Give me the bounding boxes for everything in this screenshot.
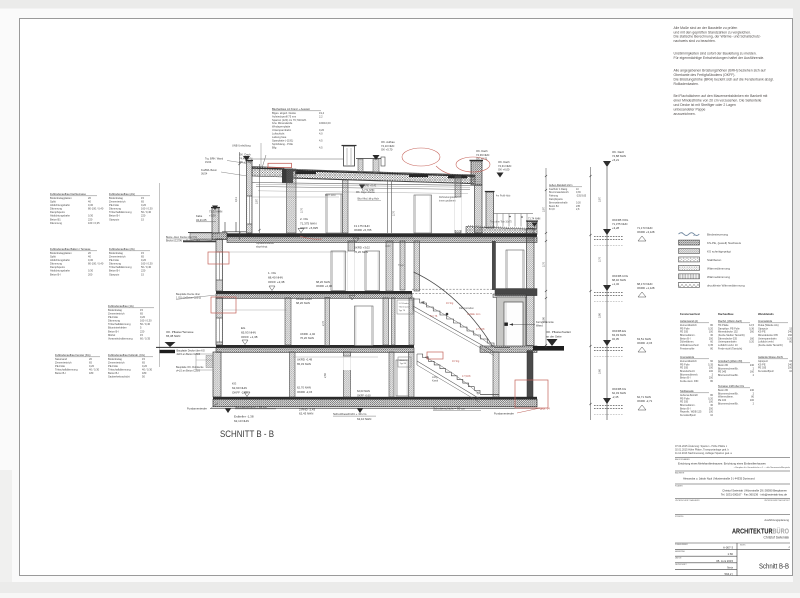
svg-text:+3,28: +3,28: [612, 226, 620, 230]
svg-text:UNTERSCHRIFT BAUHERR: UNTERSCHRIFT BAUHERR: [675, 499, 700, 502]
svg-text:Zementestrich: Zementestrich: [109, 200, 126, 204]
svg-text:Tel. 0231 000167 · Fax 360136: Tel. 0231 000167 · Fax 360136 · info@swi…: [721, 492, 788, 496]
svg-text:65,93 NHN: 65,93 NHN: [241, 331, 256, 335]
svg-text:UKRD +3,02: UKRD +3,02: [354, 246, 370, 250]
svg-text:160 / 0,30: 160 / 0,30: [141, 262, 153, 266]
svg-text:0,20: 0,20: [141, 203, 147, 207]
svg-text:Spanplatte (-1191): Spanplatte (-1191): [272, 138, 293, 142]
svg-text:Gründach (Warm 80): Gründach (Warm 80): [718, 359, 742, 363]
svg-text:bzw. Mineralwolle: bzw. Mineralwolle: [272, 121, 293, 125]
svg-text:16 Stg: 16 Stg: [446, 302, 454, 305]
svg-text:Gelände-Wiese AG/N: Gelände-Wiese AG/N: [758, 355, 783, 359]
svg-text:2,2: 2,2: [319, 114, 323, 118]
svg-text:GEZEICHNET: GEZEICHNET: [675, 564, 687, 566]
svg-text:PE-Folie: PE-Folie: [55, 364, 66, 368]
svg-text:74,31 NHN: 74,31 NHN: [498, 164, 511, 168]
svg-text:62,03 NHN: 62,03 NHN: [357, 389, 370, 393]
svg-text:220: 220: [141, 269, 146, 273]
svg-text:62,10 NHN: 62,10 NHN: [357, 417, 371, 421]
svg-text:0,30: 0,30: [88, 258, 94, 262]
svg-text:Dachaufbau: Dachaufbau: [718, 312, 734, 316]
svg-text:0,30: 0,30: [88, 269, 94, 273]
svg-text:80-100 / 0,40: 80-100 / 0,40: [88, 207, 104, 211]
svg-text:gepr. 04: gepr. 04: [540, 407, 550, 411]
svg-text:PE-Folie: PE-Folie: [109, 203, 120, 207]
svg-text:Fußbodenaufbau Fenster (KG): Fußbodenaufbau Fenster (KG): [55, 353, 91, 357]
svg-text:Kunststoffputz: Kunststoffputz: [758, 370, 775, 373]
svg-text:0,20: 0,20: [141, 258, 147, 262]
svg-text:Gipsputz: Gipsputz: [109, 217, 120, 221]
svg-text:2,80: 2,80: [598, 312, 602, 318]
svg-text:71,375 NHN: 71,375 NHN: [300, 222, 317, 226]
svg-text:0,30: 0,30: [88, 214, 94, 218]
svg-text:Errichtung eines Mehrfamilienh: Errichtung eines Mehrfamilienhauses: Err…: [678, 462, 766, 466]
svg-text:Typ 70: Typ 70: [399, 310, 406, 312]
svg-text:15/24: 15/24: [205, 161, 212, 164]
svg-text:0,20: 0,20: [89, 364, 95, 368]
svg-text:2,80: 2,80: [542, 316, 546, 322]
svg-text:Bodenbelagplatten: Bodenbelagplatten: [50, 251, 72, 255]
svg-text:an der Seite: an der Seite: [546, 334, 562, 338]
svg-text:160 / 0,30: 160 / 0,30: [140, 319, 152, 323]
svg-text:0,20: 0,20: [749, 341, 754, 344]
svg-text:Splitt: Splitt: [50, 255, 56, 259]
svg-text:05. Juni 2015: 05. Juni 2015: [716, 559, 733, 563]
svg-text:Bodenbelagplatten: Bodenbelagplatten: [50, 196, 72, 200]
svg-text:Wärmedämmung: Wärmedämmung: [707, 275, 730, 279]
svg-text:OK +5,70: OK +5,70: [381, 148, 393, 152]
svg-text:-2,45: -2,45: [612, 395, 619, 399]
svg-text:Zementestrich: Zementestrich: [55, 361, 72, 365]
svg-text:Oberkante des Fertigfußbodens: Oberkante des Fertigfußbodens (OKFF).: [674, 73, 736, 77]
svg-text:+5,21: +5,21: [612, 158, 620, 162]
svg-text:BAUHERR: BAUHERR: [675, 472, 685, 475]
svg-text:Bodenbelag: Bodenbelag: [109, 196, 123, 200]
svg-text:19,4: 19,4: [319, 111, 325, 115]
svg-text:OK. Aufbau: OK. Aufbau: [381, 140, 395, 144]
svg-text:Terrasse 1/28 über KG: Terrasse 1/28 über KG: [718, 384, 744, 388]
svg-text:Trittschalldämmung: Trittschalldämmung: [108, 322, 131, 326]
svg-text:OKRD -2,15: OKRD -2,15: [297, 390, 313, 394]
svg-text:OKRD -0,15: OKRD -0,15: [637, 341, 653, 345]
svg-text:Schutzbeschicht + 30 cm: Schutzbeschicht + 30 cm: [333, 412, 367, 416]
svg-text:76,20 NHN: 76,20 NHN: [354, 250, 368, 254]
svg-text:4,0: 4,0: [319, 132, 323, 136]
svg-text:4x15 an Beton C25/3: 4x15 an Beton C25/3: [177, 353, 201, 356]
svg-text:UKRD -0,49: UKRD -0,49: [297, 358, 313, 362]
svg-text:Christof Swieniak | Würzs: Christof Swieniak | Würzstraße 29 | 5959…: [722, 489, 787, 493]
svg-text:50 / 0,40: 50 / 0,40: [140, 322, 151, 326]
svg-text:65,38 NHN: 65,38 NHN: [166, 334, 180, 338]
svg-text:02.01.2015 Höhe Plätze, Tra: 02.01.2015 Höhe Plätze, Transportanlage …: [675, 449, 730, 452]
svg-text:OKFF +2,38: OKFF +2,38: [268, 280, 285, 284]
svg-text:Abdeck: Abdeck: [400, 359, 408, 362]
svg-text:Christof Swieniak: Christof Swieniak: [764, 536, 790, 540]
svg-text:Aufsteckprofil 75 mm: Aufsteckprofil 75 mm: [272, 114, 296, 118]
svg-text:74,10 NHN: 74,10 NHN: [381, 144, 394, 148]
svg-text:160 / 0,30: 160 / 0,30: [141, 207, 153, 211]
svg-text:Trittschalldämmung: Trittschalldämmung: [109, 210, 132, 214]
svg-text:Alexandra u. Jakob Nyul |: Alexandra u. Jakob Nyul | Musterstraße 5…: [683, 477, 755, 481]
svg-text:68,20 NHN: 68,20 NHN: [296, 301, 310, 305]
svg-text:76,20 NHN: 76,20 NHN: [300, 336, 314, 340]
svg-text:PLANNUMMER: PLANNUMMER: [675, 543, 688, 546]
svg-text:Dämmung: Dämmung: [109, 262, 122, 266]
svg-text:160/10,00: 160/10,00: [319, 121, 331, 125]
svg-text:11.12.2013 Nachmessung, Aufl: 11.12.2013 Nachmessung, Auflager Sparren…: [675, 452, 732, 455]
svg-text:2,70: 2,70: [300, 207, 304, 213]
svg-text:220: 220: [88, 217, 93, 221]
svg-text:B 3,8: B 3,8: [549, 208, 555, 211]
svg-text:Dampfsperre: Dampfsperre: [50, 265, 66, 269]
svg-text:Außenwand (A): Außenwand (A): [680, 319, 698, 323]
svg-text:68,40 NHN: 68,40 NHN: [268, 276, 283, 280]
svg-text:40 / 0,30: 40 / 0,30: [142, 368, 153, 372]
svg-text:50 / 0,40: 50 / 0,40: [141, 265, 152, 269]
svg-text:OK. Dach: OK. Dach: [476, 149, 488, 153]
svg-text:OKFF -0,60: OKFF -0,60: [357, 393, 371, 397]
svg-text:Dämmung: Dämmung: [109, 207, 122, 211]
svg-text:Blechanfass mit Kranz + Auswei: Blechanfass mit Kranz + Ausweit: [272, 107, 310, 111]
svg-text:62,10 NHN: 62,10 NHN: [234, 419, 249, 423]
svg-text:Bodenbelag: Bodenbelag: [108, 357, 122, 361]
svg-text:Trittschalldämmung: Trittschalldämmung: [55, 368, 78, 372]
svg-text:abgehängt: abgehängt: [256, 245, 268, 248]
svg-text:Dämmung: Dämmung: [50, 221, 63, 225]
svg-text:60 / 0,35: 60 / 0,35: [140, 336, 151, 340]
svg-text:Fußbodenaufbau Dachterrasse: Fußbodenaufbau Dachterrasse: [50, 192, 86, 196]
svg-text:Dämmung: Dämmung: [108, 319, 121, 323]
svg-text:OK. Dach: OK. Dach: [239, 153, 251, 157]
svg-text:Trittschalldämmung: Trittschalldämmung: [109, 265, 132, 269]
svg-text:Erdkeller -1,38: Erdkeller -1,38: [234, 415, 254, 419]
svg-text:Mörtel: Mörtel: [108, 333, 116, 337]
svg-text:Netz: Netz: [727, 565, 733, 569]
svg-text:Dämmung: Dämmung: [50, 262, 63, 266]
svg-text:65,33 NHN: 65,33 NHN: [297, 362, 311, 366]
svg-text:Gefälle 1cm: Gefälle 1cm: [467, 313, 480, 316]
svg-text:Trau dem Tide 10x75: Trau dem Tide 10x75: [490, 221, 512, 224]
svg-text:Thermostat: Thermostat: [399, 305, 410, 308]
svg-text:und mit den geprüften Standzah: und mit den geprüften Standzahlen zu ver…: [674, 30, 752, 34]
svg-text:+3,05: +3,05: [209, 213, 216, 217]
svg-text:260: 260: [750, 331, 755, 334]
svg-text:±0,35: ±0,35: [612, 337, 619, 341]
svg-text:2.RND -2,43: 2.RND -2,43: [299, 407, 315, 411]
svg-text:2. OG: 2. OG: [300, 217, 309, 221]
svg-text:Fußbodenaufbau (1G): Fußbodenaufbau (1G): [108, 304, 134, 308]
svg-text:Ferde-stein. DIN: Ferde-stein. DIN: [680, 380, 699, 383]
svg-text:180: 180: [89, 371, 94, 375]
svg-text:Beton B1: Beton B1: [50, 217, 61, 221]
svg-text:0,20: 0,20: [142, 364, 148, 368]
svg-text:1. OG: 1. OG: [268, 271, 277, 275]
svg-text:Dämmung: Dämmung: [50, 207, 63, 211]
svg-text:Ausführungsplanung: Ausführungsplanung: [764, 518, 789, 522]
svg-text:5,772 NHN: 5,772 NHN: [362, 189, 375, 192]
svg-text:PE-Folie: PE-Folie: [109, 258, 120, 262]
svg-text:Sparren (120) cm 76,740/126.: Sparren (120) cm 76,740/126.: [272, 118, 307, 122]
svg-text:KS schnittgeprägt: KS schnittgeprägt: [707, 250, 731, 254]
svg-text:Kunststoffputz: Kunststoffputz: [680, 414, 697, 417]
svg-text:594,2 |: 594,2 |: [724, 572, 733, 576]
svg-text:anzuzeichnen.: anzuzeichnen.: [674, 112, 696, 116]
svg-text:DATUM: DATUM: [675, 556, 682, 559]
svg-text:Zementestrich: Zementestrich: [108, 312, 125, 316]
svg-text:ARCHITEKTURBÜRO: ARCHITEKTURBÜRO: [732, 526, 789, 535]
svg-text:Bindesteuerung: Bindesteuerung: [707, 233, 728, 237]
svg-text:16 Stg: 16 Stg: [452, 360, 460, 363]
svg-text:Abdichtungsbahn: Abdichtungsbahn: [50, 203, 71, 207]
svg-text:Bodenbelag: Bodenbelag: [109, 251, 123, 255]
svg-text:OK +3,21: OK +3,21: [239, 160, 251, 164]
svg-text:BAUVORHABEN: BAUVORHABEN: [675, 458, 690, 461]
svg-text:Fundamenterder: Fundamenterder: [494, 412, 514, 416]
svg-text:Die Brüstungshöhe (BRH) bezieh: Die Brüstungshöhe (BRH) bezieht sich auf…: [674, 77, 774, 81]
svg-text:Innenwände: Innenwände: [758, 319, 773, 323]
svg-text:OKRD +2,08: OKRD +2,08: [316, 284, 332, 288]
svg-text:Schnitt B-B: Schnitt B-B: [759, 562, 789, 571]
svg-text:17,5/28: 17,5/28: [462, 375, 471, 378]
svg-text:36/24: 36/24: [201, 172, 208, 175]
svg-text:OK +6,00: OK +6,00: [498, 168, 510, 172]
svg-text:+ Bauplan für Grundstücke v.1: + Bauplan für Grundstücke v.1 — alle Nen…: [734, 466, 791, 469]
svg-text:2,70: 2,70: [598, 256, 602, 262]
svg-text:innen gedämmt: innen gedämmt: [439, 199, 456, 202]
svg-text:+1,32: +1,32: [612, 282, 620, 286]
svg-text:Beton B-I: Beton B-I: [108, 371, 119, 375]
svg-text:Dampfsperre: Dampfsperre: [50, 210, 66, 214]
svg-text:OKRD +5,705: OKRD +5,705: [354, 228, 372, 232]
svg-text:Dämmstreifen: Dämmstreifen: [459, 307, 475, 310]
svg-text:0,30: 0,30: [88, 203, 94, 207]
svg-text:Alle angegebenen Brüstungshöhe: Alle angegebenen Brüstungshöhen (BRH) be…: [674, 69, 766, 73]
svg-text:druckfeste Wärmedämmung: druckfeste Wärmedämmung: [707, 283, 745, 287]
svg-text:Fußbodenaufbau Kellerab. (KG): Fußbodenaufbau Kellerab. (KG): [108, 353, 145, 357]
svg-text:unbesandeter Pappe: unbesandeter Pappe: [674, 107, 706, 111]
svg-text:Fußbodenaufbau (2G): Fußbodenaufbau (2G): [109, 247, 135, 251]
svg-text:A-007-3: A-007-3: [723, 546, 733, 550]
svg-text:Fundamenterder: Fundamenterder: [187, 406, 207, 410]
svg-text:2,70: 2,70: [542, 261, 546, 267]
svg-text:Unstimmigkeiten sind sofort de: Unstimmigkeiten sind sofort der Bauleitu…: [674, 52, 757, 56]
svg-text:INDEX: INDEX: [740, 544, 746, 546]
svg-text:und Decke ist mit Streifiger o: und Decke ist mit Streifiger oder 2 Lage…: [674, 103, 736, 107]
svg-text:Gipsputz: Gipsputz: [109, 272, 120, 276]
svg-text:OKRD +1,128: OKRD +1,128: [637, 286, 655, 290]
svg-text:Fenstersohle: Fenstersohle: [680, 347, 695, 350]
svg-text:Abdichtungsbahn: Abdichtungsbahn: [50, 258, 71, 262]
svg-text:74,39 NHN: 74,39 NHN: [476, 153, 489, 157]
svg-text:Bitumenschweißb.: Bitumenschweißb.: [718, 374, 739, 377]
svg-text:4m Profil-Holz: 4m Profil-Holz: [496, 195, 511, 198]
svg-text:Beton B-I: Beton B-I: [50, 272, 61, 276]
svg-text:07.04.2015 Änderung: Sparren: 07.04.2015 Änderung: Sparren - Höhe Plät…: [675, 445, 728, 448]
svg-text:Bodenbelag: Bodenbelag: [108, 308, 122, 312]
svg-text:220: 220: [141, 214, 146, 218]
svg-text:1:66: 1:66: [728, 552, 734, 556]
svg-text:62,43 NHN: 62,43 NHN: [299, 412, 313, 416]
svg-text:62,90 NHN: 62,90 NHN: [232, 386, 247, 390]
svg-text:d=LS an Beton C25/3: d=LS an Beton C25/3: [176, 369, 201, 372]
svg-text:17,5/28: 17,5/28: [476, 328, 485, 331]
svg-text:OK. Pflaster/Gelänt: OK. Pflaster/Gelänt: [546, 330, 571, 334]
svg-text:Rollladenkasten.: Rollladenkasten.: [674, 82, 699, 86]
svg-text:Fensterwerttext: Fensterwerttext: [680, 312, 700, 316]
svg-text:Abdichtungsbahn: Abdichtungsbahn: [50, 269, 71, 273]
svg-text:EG: EG: [241, 326, 246, 330]
svg-text:Flachd. (Warm dach): Flachd. (Warm dach): [718, 319, 742, 323]
svg-text:Spritzklang - Prille: Spritzklang - Prille: [272, 142, 293, 146]
svg-text:Alle Maße sind an der Baustell: Alle Maße sind an der Baustelle zu prüfe…: [674, 26, 738, 30]
svg-text:Bei Flachdächern auf den Mauer: Bei Flachdächern auf den Mauerwerksbänke…: [674, 94, 768, 98]
svg-text:Die statische Berechnung, der: Die statische Berechnung, der Wärme- und…: [674, 35, 761, 39]
svg-text:OKFF +1,38: OKFF +1,38: [241, 335, 258, 339]
svg-text:(Ferde-stelle Tansicht): (Ferde-stelle Tansicht): [758, 344, 783, 347]
svg-text:Voranstrichdämmung: Voranstrichdämmung: [108, 336, 133, 340]
svg-text:34,21.05: 34,21.05: [196, 218, 207, 222]
svg-text:Fußbodenaufbau Balkon / Terra: Fußbodenaufbau Balkon / Terrasse: [50, 247, 91, 251]
svg-text:Splitt: Splitt: [50, 200, 56, 204]
svg-text:Innenwände: Innenwände: [680, 355, 695, 359]
svg-text:Typ 80: Typ 80: [400, 363, 407, 365]
svg-text:Beton B-I: Beton B-I: [55, 371, 66, 375]
svg-text:200: 200: [88, 272, 93, 276]
svg-text:Natursand: Natursand: [55, 357, 68, 361]
svg-text:1030: 1030: [385, 245, 391, 248]
svg-text:80-100 / 0,40: 80-100 / 0,40: [88, 262, 104, 266]
svg-text:2,70: 2,70: [392, 210, 396, 216]
svg-text:OKFF -2,08: OKFF -2,08: [232, 390, 248, 394]
svg-text:OKRD +3,128: OKRD +3,128: [637, 230, 655, 234]
svg-text:71,32 NHN: 71,32 NHN: [209, 210, 222, 214]
svg-text:Wärmedämmung: Wärmedämmung: [707, 267, 730, 271]
svg-text:UNB Umhüllung: UNB Umhüllung: [232, 144, 251, 148]
svg-text:Wand: Wand: [536, 324, 543, 328]
svg-text:Beton B-I: Beton B-I: [109, 214, 120, 218]
svg-text:220: 220: [140, 329, 145, 333]
svg-text:Blges. abgeh. Decke: Blges. abgeh. Decke: [272, 111, 296, 115]
svg-text:Bitu-/Abd. ält-g Holz: Bitu-/Abd. ält-g Holz: [358, 198, 380, 201]
svg-text:160 / 0,35: 160 / 0,35: [88, 221, 100, 225]
svg-text:OKRD -2,71: OKRD -2,71: [637, 399, 653, 403]
svg-text:Beckst (12/24) an Beton C25/: Beckst (12/24) an Beton C25/3: [166, 239, 201, 242]
svg-text:Abdichtungsbahn: Abdichtungsbahn: [50, 214, 71, 218]
svg-text:Stahlbeton: Stahlbeton: [707, 258, 722, 262]
svg-text:4,5: 4,5: [319, 145, 323, 149]
svg-text:50 / 0,40: 50 / 0,40: [141, 210, 152, 214]
svg-text:62,70 NHN: 62,70 NHN: [297, 386, 311, 390]
svg-text:MASSSTAB: MASSSTAB: [675, 550, 685, 553]
svg-text:Unterspannbahn: Unterspannbahn: [272, 128, 292, 132]
svg-text:Bitumenschweißb.: Bitumenschweißb.: [718, 402, 739, 405]
svg-text:4,5: 4,5: [319, 138, 323, 142]
svg-text:180: 180: [142, 371, 147, 375]
svg-text:Für eigenmächtige Entscheidung: Für eigenmächtige Entscheidungen haftet …: [674, 56, 765, 60]
svg-text:Bituminierkleber: Bituminierkleber: [108, 326, 127, 330]
svg-text:Fußbodenaufbau (AG): Fußbodenaufbau (AG): [109, 192, 135, 196]
svg-text:OK. Dach: OK. Dach: [498, 160, 510, 164]
svg-text:OKFF +5,825: OKFF +5,825: [300, 226, 318, 230]
svg-text:Schotterschicht = 30 cm: Schotterschicht = 30 cm: [433, 407, 466, 411]
svg-text:2,87: 2,87: [598, 196, 602, 202]
svg-text:0,20: 0,20: [319, 128, 325, 132]
svg-text:Lattung fase: Lattung fase: [272, 135, 287, 139]
svg-text:71,74 NHN: 71,74 NHN: [528, 218, 541, 221]
svg-text:Ferde-stuhl (Tansicht): Ferde-stuhl (Tansicht): [718, 347, 742, 350]
svg-text:Kanal: Kanal: [432, 379, 439, 382]
svg-text:Tür 76: Tür 76: [430, 315, 438, 318]
svg-text:nachweis sind zu beachten.: nachweis sind zu beachten.: [674, 39, 716, 43]
svg-text:Schotterschicht = 30 cm: Schotterschicht = 30 cm: [235, 405, 268, 409]
svg-text:Zementestrich: Zementestrich: [108, 361, 125, 365]
svg-text:einer Mindesthöhe von 20 cm vo: einer Mindesthöhe von 20 cm vorzusehen. …: [674, 99, 762, 103]
svg-text:2,87: 2,87: [255, 198, 259, 204]
svg-text:OKRD +5,41: OKRD +5,41: [362, 185, 377, 188]
svg-text:KS-PE, (jewell) Nachweis: KS-PE, (jewell) Nachweis: [707, 241, 742, 245]
svg-text:-235/3,65: -235/3,65: [576, 195, 587, 198]
svg-text:UNTERSCHRIFT ARCHITEKT: UNTERSCHRIFT ARCHITEKT: [764, 499, 791, 502]
svg-text:PE-Folie: PE-Folie: [108, 364, 119, 368]
svg-text:Südfassade: Südfassade: [680, 389, 694, 393]
svg-text:3,11: 3,11: [234, 197, 238, 202]
svg-text:2,60: 2,60: [323, 372, 327, 378]
svg-text:2,70: 2,70: [321, 320, 325, 326]
svg-text:40 / 0,30: 40 / 0,30: [89, 368, 100, 372]
svg-text:Luftschicht: Luftschicht: [272, 132, 285, 136]
svg-text:BRH 1030: BRH 1030: [325, 195, 336, 197]
svg-text:2,87: 2,87: [542, 206, 546, 212]
svg-text:1-2 Kinder: 1-2 Kinder: [399, 302, 409, 305]
svg-text:Bllg: Bllg: [272, 145, 277, 149]
svg-text:SCHNITT B - B: SCHNITT B - B: [220, 429, 274, 440]
svg-text:STEMPEL: STEMPEL: [675, 516, 684, 518]
svg-text:Außen-Randard-Vorm: Außen-Randard-Vorm: [549, 184, 572, 187]
svg-text:KG: KG: [232, 382, 237, 386]
svg-text:PE-Folie: PE-Folie: [108, 315, 119, 319]
svg-text:Beton B-I: Beton B-I: [108, 329, 119, 333]
svg-text:Zementestrich: Zementestrich: [109, 255, 126, 259]
svg-text:Sauberkeitsschicht: Sauberkeitsschicht: [108, 375, 130, 379]
svg-text:Beton B-I: Beton B-I: [109, 269, 120, 273]
svg-text:PLANER: PLANER: [675, 485, 683, 488]
svg-text:2,60: 2,60: [598, 368, 602, 374]
svg-text:0,20: 0,20: [140, 315, 146, 319]
svg-text:Windsperrplatte: Windsperrplatte: [272, 125, 291, 129]
svg-text:Kabe: Kabe: [196, 214, 203, 218]
svg-text:Wanddetails: Wanddetails: [758, 312, 774, 316]
svg-text:Trittschalldämmung: Trittschalldämmung: [108, 368, 131, 372]
